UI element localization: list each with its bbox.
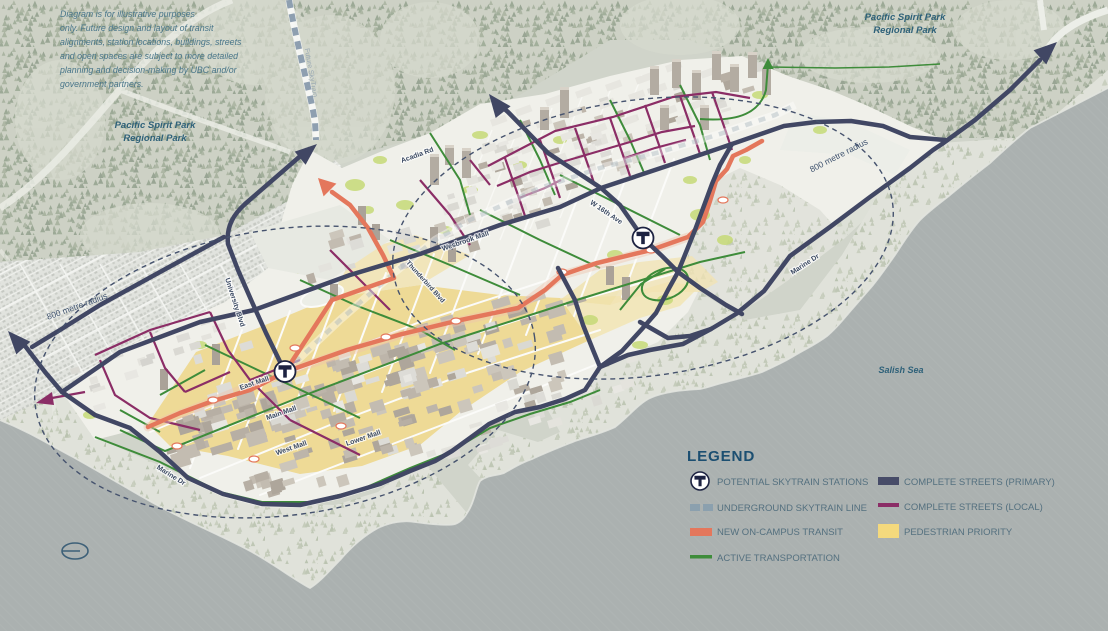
svg-text:NEW ON-CAMPUS TRANSIT: NEW ON-CAMPUS TRANSIT: [717, 527, 843, 538]
svg-text:Pacific Spirit Park: Pacific Spirit Park: [115, 120, 197, 131]
svg-text:LEGEND: LEGEND: [687, 448, 755, 465]
svg-text:planning and decision-making b: planning and decision-making by UBC and/…: [59, 65, 238, 75]
svg-text:UNDERGROUND SKYTRAIN LINE: UNDERGROUND SKYTRAIN LINE: [717, 503, 867, 514]
svg-text:only. Future design and layout: only. Future design and layout of transi…: [60, 23, 214, 33]
svg-text:Regional Park: Regional Park: [873, 25, 937, 36]
svg-text:Salish Sea: Salish Sea: [878, 365, 923, 375]
svg-text:alignments, station locations,: alignments, station locations, buildings…: [60, 37, 242, 47]
svg-text:Pacific Spirit Park: Pacific Spirit Park: [865, 12, 947, 23]
svg-text:COMPLETE STREETS (LOCAL): COMPLETE STREETS (LOCAL): [904, 502, 1043, 513]
svg-text:POTENTIAL SKYTRAIN STATIONS: POTENTIAL SKYTRAIN STATIONS: [717, 477, 868, 488]
svg-text:Regional Park: Regional Park: [123, 133, 187, 144]
svg-text:ACTIVE TRANSPORTATION: ACTIVE TRANSPORTATION: [717, 553, 840, 564]
svg-text:COMPLETE STREETS (PRIMARY): COMPLETE STREETS (PRIMARY): [904, 477, 1055, 488]
svg-text:government partners.: government partners.: [60, 79, 144, 89]
svg-text:and open spaces are subject to: and open spaces are subject to more deta…: [60, 51, 239, 61]
svg-text:PEDESTRIAN PRIORITY: PEDESTRIAN PRIORITY: [904, 527, 1013, 538]
svg-text:Diagram is for illustrative pu: Diagram is for illustrative purposes: [60, 9, 196, 19]
